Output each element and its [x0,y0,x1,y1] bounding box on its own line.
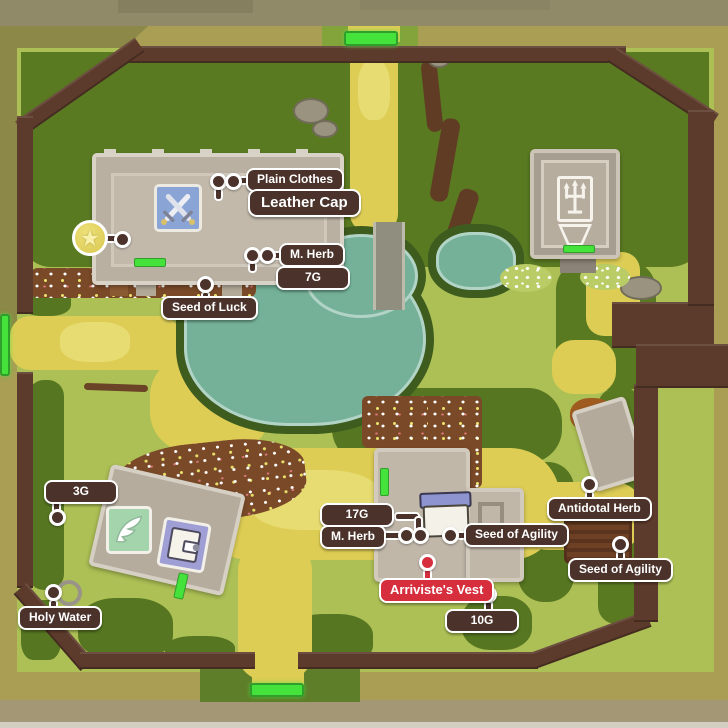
rock [312,120,338,138]
weapon-shop-battlements [104,149,332,156]
wall-east-jog [612,302,714,348]
label-17g: 17G [320,503,394,527]
marker-dot [442,527,459,544]
wall-north [126,46,626,63]
west-gate-door [0,314,10,376]
map-margin-top-shade [360,0,550,10]
map-margin-top-shade [118,0,253,13]
bed-pillow [192,544,200,552]
label-leather-cap: Leather Cap [248,189,361,217]
item-shop-icon [106,506,152,554]
wall-east-jog-2 [636,344,728,388]
wing-icon [110,511,148,549]
wall-south-right [298,652,538,669]
trident-icon [561,180,589,218]
marker-dot [581,476,598,493]
marker-dot [114,231,131,248]
weapon-shop-door [134,258,166,267]
map-margin-bottom-edge [0,722,728,728]
mini-medal-star: ★ [81,226,99,251]
flower-cluster [500,264,552,292]
label-3g: 3G [44,480,118,504]
label-10g: 10G [445,609,519,633]
label-arrivistes-vest: Arriviste's Vest [379,578,494,603]
town-map: Plain Clothes Leather Cap M. Herb 7G See… [0,0,728,728]
inn-room-icon [156,516,212,574]
crossed-swords-icon [157,187,199,229]
marker-dot [259,247,276,264]
path [60,322,130,362]
wall-east-upper [688,110,714,306]
bridge [373,222,405,310]
marker-dot [49,509,66,526]
label-seed-of-agility-garden: Seed of Agility [568,558,673,582]
wall-west-lower [17,372,33,588]
label-7g: 7G [276,266,350,290]
church-door [563,245,595,253]
mini-medal-icon: ★ [72,220,108,256]
label-m-herb-shop: M. Herb [279,243,345,267]
path [358,60,390,120]
inn-door [380,468,389,496]
marker-dot [412,527,429,544]
wall-west-upper [17,116,33,314]
north-gate-door [344,31,398,46]
building-stub [560,259,596,273]
marker-dot [197,276,214,293]
path [552,340,616,394]
marker-dot-highlight [419,554,436,571]
marker-dot [612,536,629,553]
marker-dot [45,584,62,601]
south-gate-door [250,683,304,697]
label-seed-of-luck: Seed of Luck [161,296,258,320]
weapon-shop-icon [154,184,202,232]
label-seed-of-agility-inn: Seed of Agility [464,523,569,547]
label-m-herb-inn: M. Herb [320,525,386,549]
wall-south-left [80,652,255,669]
label-holy-water: Holy Water [18,606,102,630]
church-icon [557,176,593,222]
label-antidotal-herb: Antidotal Herb [547,497,652,521]
marker-dot [225,173,242,190]
